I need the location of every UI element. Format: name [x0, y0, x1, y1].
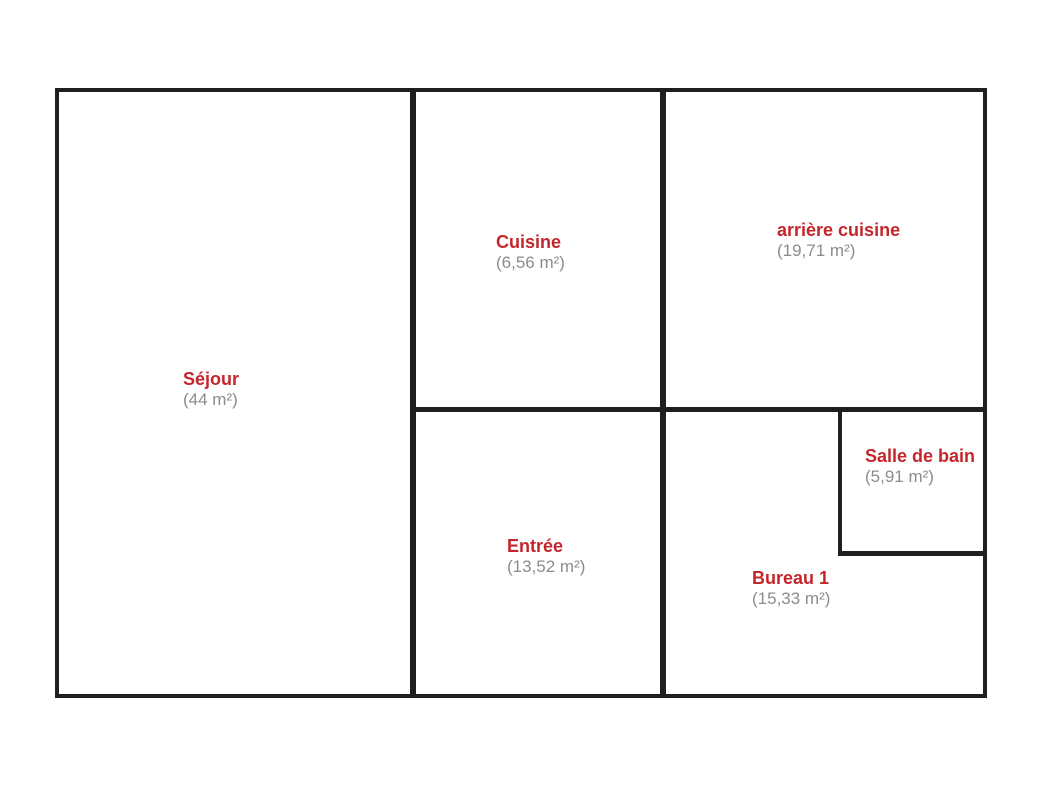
room-area-bureau-1: (15,33 m²): [752, 589, 830, 608]
wall-horizontal-mid: [410, 407, 987, 412]
room-name-cuisine: Cuisine: [496, 233, 565, 252]
room-label-salle-de-bain: Salle de bain (5,91 m²): [865, 447, 975, 486]
room-label-sejour: Séjour (44 m²): [183, 370, 239, 409]
wall-bathroom-bottom: [838, 551, 987, 556]
room-name-arriere-cuisine: arrière cuisine: [777, 221, 900, 240]
room-label-cuisine: Cuisine (6,56 m²): [496, 233, 565, 272]
room-label-entree: Entrée (13,52 m²): [507, 537, 585, 576]
room-area-salle-de-bain: (5,91 m²): [865, 467, 975, 486]
wall-bathroom-left: [838, 407, 842, 555]
wall-middle-right-divider: [660, 88, 666, 698]
floorplan-canvas: Séjour (44 m²) Cuisine (6,56 m²) arrière…: [0, 0, 1039, 800]
room-name-sejour: Séjour: [183, 370, 239, 389]
room-area-sejour: (44 m²): [183, 390, 239, 409]
room-area-arriere-cuisine: (19,71 m²): [777, 241, 900, 260]
room-name-salle-de-bain: Salle de bain: [865, 447, 975, 466]
room-area-cuisine: (6,56 m²): [496, 253, 565, 272]
room-area-entree: (13,52 m²): [507, 557, 585, 576]
room-label-bureau-1: Bureau 1 (15,33 m²): [752, 569, 830, 608]
room-label-arriere-cuisine: arrière cuisine (19,71 m²): [777, 221, 900, 260]
wall-sejour-divider: [410, 88, 416, 698]
room-name-bureau-1: Bureau 1: [752, 569, 830, 588]
room-name-entree: Entrée: [507, 537, 585, 556]
